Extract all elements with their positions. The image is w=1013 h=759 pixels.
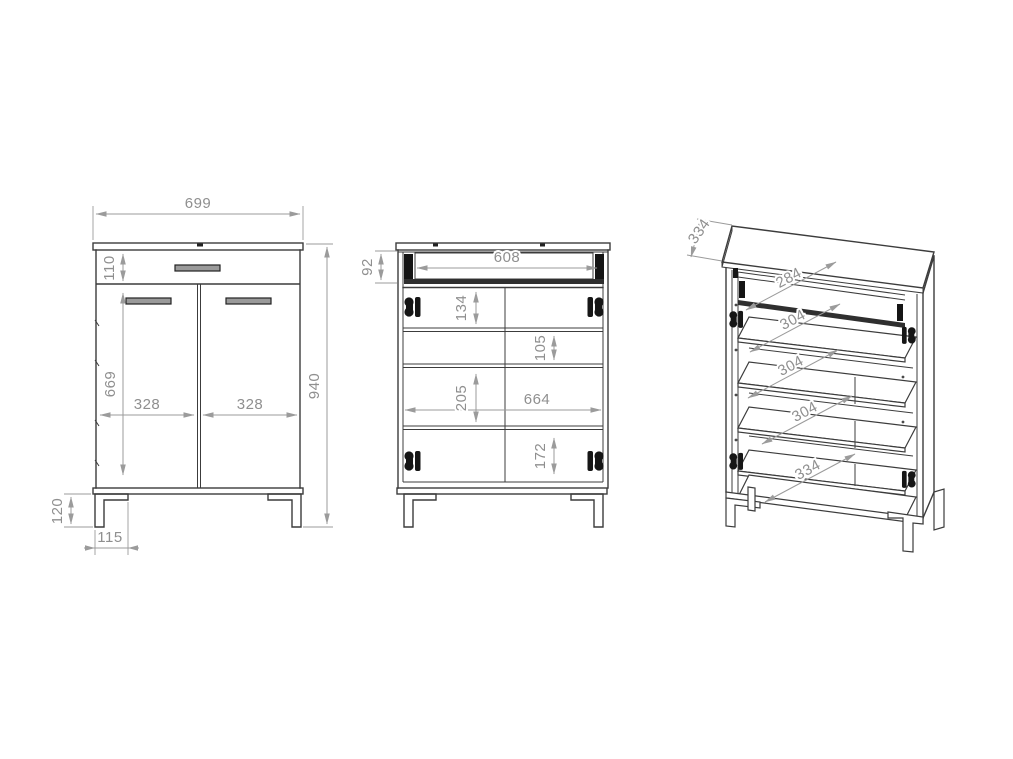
iso-hinge-left-lower bbox=[729, 453, 743, 470]
open-gap1-label: 134 bbox=[453, 295, 470, 322]
open-gap2-label: 105 bbox=[532, 335, 549, 362]
open-hinge-right-lower bbox=[588, 451, 604, 471]
iso-pin-hole bbox=[735, 394, 738, 397]
open-outer-walls bbox=[398, 250, 608, 488]
iso-drawer-slide-right bbox=[897, 304, 903, 321]
front-leg-depth-arrow-right bbox=[128, 545, 138, 551]
front-right-leg bbox=[268, 494, 301, 527]
iso-drawer-slide-left bbox=[739, 281, 745, 298]
open-cabinet-outline bbox=[396, 243, 610, 527]
open-drawer-width-label: 608 bbox=[494, 249, 521, 266]
open-drawer-slide-left bbox=[404, 254, 413, 279]
iso-pin-hole bbox=[902, 376, 905, 379]
open-drawer-bottom-rail bbox=[404, 279, 604, 284]
technical-drawing-canvas: 699 110 669 328 328 940 120 115 bbox=[0, 0, 1013, 759]
front-view: 699 110 669 328 328 940 120 115 bbox=[49, 195, 333, 555]
open-gap4-label: 172 bbox=[532, 443, 549, 470]
front-leg-height-label: 120 bbox=[49, 498, 66, 525]
iso-depth-label: 334 bbox=[685, 216, 714, 247]
front-leg-depth-arrow-left bbox=[85, 545, 95, 551]
iso-interior-top-edge bbox=[738, 272, 905, 300]
iso-hinge-right-lower bbox=[902, 471, 916, 488]
iso-top-bracket bbox=[733, 268, 738, 278]
iso-front-right-leg bbox=[888, 512, 923, 552]
iso-pin-hole bbox=[902, 421, 905, 424]
iso-right-face-edges bbox=[923, 256, 934, 518]
front-dimensions: 699 110 669 328 328 940 120 115 bbox=[49, 195, 333, 555]
open-interior-width-label: 664 bbox=[524, 391, 551, 408]
open-right-leg bbox=[571, 494, 603, 527]
open-front-view: 92 608 134 105 205 664 172 bbox=[359, 243, 610, 527]
open-drawer-box-label: 92 bbox=[359, 258, 376, 276]
open-base-rail bbox=[397, 488, 607, 494]
front-drawer-handle bbox=[175, 265, 220, 271]
iso-pin-hole bbox=[735, 439, 738, 442]
front-door-height-label: 669 bbox=[102, 371, 119, 398]
front-left-leg bbox=[95, 494, 128, 527]
open-extension-lines bbox=[375, 251, 397, 283]
iso-pin-hole bbox=[735, 304, 738, 307]
front-right-door-handle bbox=[226, 298, 271, 304]
technical-drawing-page: 699 110 669 328 328 940 120 115 bbox=[0, 0, 1013, 759]
front-top-dowel-mark bbox=[197, 244, 203, 247]
front-leg-depth-label: 115 bbox=[97, 529, 122, 546]
open-hinge-left-upper bbox=[404, 297, 420, 317]
front-base-rail bbox=[93, 488, 303, 494]
open-drawer-slide-right bbox=[595, 254, 604, 279]
open-left-leg bbox=[404, 494, 436, 527]
iso-pin-hole bbox=[735, 349, 738, 352]
front-width-label: 699 bbox=[185, 195, 212, 212]
front-left-door-handle bbox=[126, 298, 171, 304]
front-height-label: 940 bbox=[306, 373, 323, 400]
iso-back-left-leg bbox=[748, 487, 755, 511]
iso-back-right-leg bbox=[934, 489, 944, 530]
open-hinge-right-upper bbox=[588, 297, 604, 317]
iso-hinge-right-upper bbox=[902, 327, 916, 344]
isometric-view: 334 284 304 304 304 334 bbox=[685, 216, 944, 552]
front-cabinet-outline bbox=[93, 243, 303, 527]
open-shelves bbox=[403, 328, 603, 482]
open-top-dowel-mark-2 bbox=[540, 244, 545, 247]
iso-cabinet-outline bbox=[722, 226, 944, 552]
front-door-gap bbox=[198, 284, 201, 488]
front-drawer-height-label: 110 bbox=[101, 255, 118, 280]
front-right-door-label: 328 bbox=[237, 396, 264, 413]
iso-drawer-shelf-label: 284 bbox=[773, 264, 804, 291]
open-hinge-left-lower bbox=[404, 451, 420, 471]
iso-hinge-left-upper bbox=[729, 311, 743, 328]
iso-top-thickness bbox=[722, 226, 923, 293]
front-left-door-label: 328 bbox=[134, 396, 161, 413]
iso-shelves bbox=[738, 317, 916, 519]
open-top-dowel-mark-1 bbox=[433, 244, 438, 247]
open-gap3-label: 205 bbox=[453, 385, 470, 412]
